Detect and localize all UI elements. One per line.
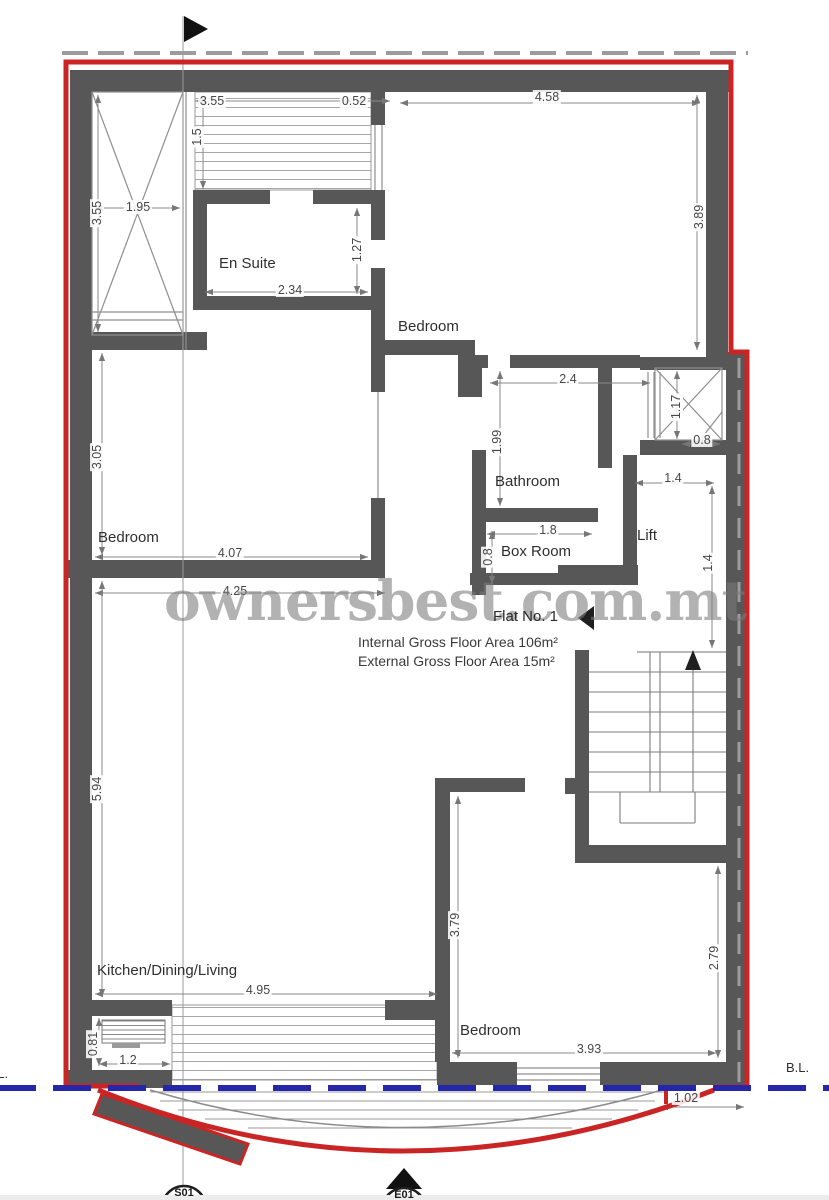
- room-label-lift: Lift: [637, 527, 657, 544]
- dim-ensuite-opening: 1.27: [350, 236, 364, 264]
- dim-shaft-width: 1.95: [124, 200, 152, 214]
- marker-label-s01: S01: [174, 1187, 194, 1199]
- dim-balcony-side-offset: 1.02: [672, 1091, 700, 1105]
- room-label-bedroom-left: Bedroom: [98, 529, 159, 546]
- dim-bathroom-width: 2.4: [557, 372, 578, 386]
- dim-bedroom-bottom-depth-right: 2.79: [707, 944, 721, 972]
- external-area-note: External Gross Floor Area 15m²: [358, 653, 555, 669]
- room-label-bathroom: Bathroom: [495, 473, 560, 490]
- dim-boxroom-depth: 0.8: [481, 546, 495, 567]
- dim-lift-width: 1.4: [662, 471, 683, 485]
- dim-bathroom-depth: 1.99: [490, 428, 504, 456]
- watermark: ownersbest.com.mt: [164, 568, 746, 633]
- building-line-label-left: B.L.: [0, 1066, 8, 1081]
- dim-planter-depth: 0.81: [86, 1030, 100, 1058]
- dim-terrace-width: 3.55: [198, 94, 226, 108]
- dim-bedroom-top-width: 4.58: [533, 90, 561, 104]
- room-label-kitchen: Kitchen/Dining/Living: [97, 962, 237, 979]
- room-label-bedroom-top: Bedroom: [398, 318, 459, 335]
- dim-living-depth: 5.94: [90, 775, 104, 803]
- floor-plan: ownersbest.com.mt En Suite Bedroom Bathr…: [0, 0, 829, 1200]
- marker-label-e01: E01: [394, 1189, 414, 1200]
- room-label-bedroom-bottom: Bedroom: [460, 1022, 521, 1039]
- building-line-label-right: B.L.: [786, 1060, 809, 1075]
- dim-bedroom-left-depth: 3.05: [90, 443, 104, 471]
- dim-boxroom-width: 1.8: [537, 523, 558, 537]
- dim-shaft2-depth: 1.17: [669, 393, 683, 421]
- dim-bedroom-bottom-depth-left: 3.79: [448, 911, 462, 939]
- dim-bedroom-top-depth: 3.89: [692, 203, 706, 231]
- dim-planter-width: 1.2: [117, 1053, 138, 1067]
- dim-parapet-right: 0.52: [340, 94, 368, 108]
- photo-edge-strip: [0, 1195, 829, 1200]
- dim-shaft2-width: 0.8: [691, 433, 712, 447]
- section-flag-icon: [184, 16, 208, 42]
- elevation-arrow-icon: [386, 1168, 422, 1189]
- dim-terrace-depth: 1.5: [190, 126, 204, 147]
- balcony: [94, 1086, 714, 1164]
- dim-bedroom-bottom-width: 3.93: [575, 1042, 603, 1056]
- internal-area-note: Internal Gross Floor Area 106m²: [358, 634, 558, 650]
- stairs-up-arrow-icon: [685, 650, 701, 670]
- dim-shaft-depth: 3.55: [90, 199, 104, 227]
- dim-kitchen-width: 4.95: [244, 983, 272, 997]
- room-label-en-suite: En Suite: [219, 255, 276, 272]
- flat-name: Flat No. 1: [493, 608, 558, 625]
- kitchen-planter: [102, 1020, 165, 1048]
- dim-bedroom-left-width: 4.07: [216, 546, 244, 560]
- dim-ensuite-width: 2.34: [276, 283, 304, 297]
- room-label-box-room: Box Room: [501, 543, 571, 560]
- stairs: [589, 652, 726, 823]
